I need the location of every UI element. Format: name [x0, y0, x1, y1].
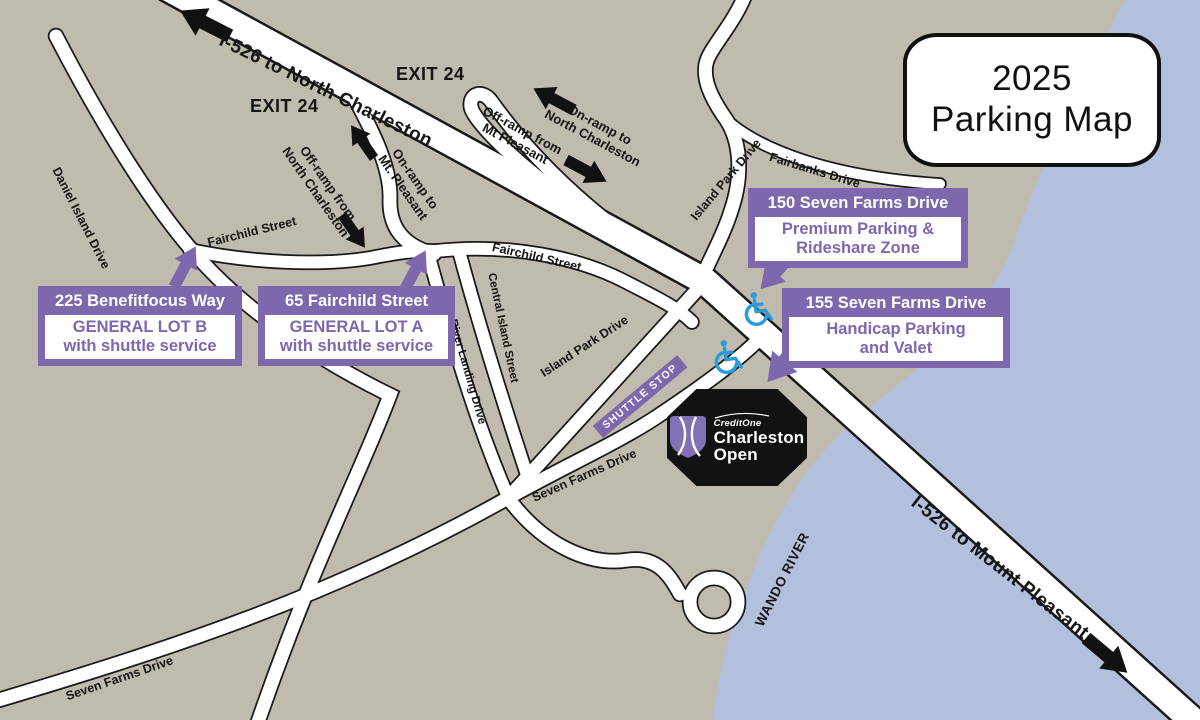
- parking-box-lot-b: 225 Benefitfocus Way GENERAL LOT B with …: [38, 286, 242, 366]
- lot-a-address: 65 Fairchild Street: [258, 290, 455, 315]
- handicap-icon: [739, 288, 776, 333]
- lot-a-details: GENERAL LOT A with shuttle service: [265, 315, 448, 359]
- premium-line1: Premium Parking &: [757, 220, 959, 239]
- lot-b-details: GENERAL LOT B with shuttle service: [45, 315, 235, 359]
- handicap-address: 155 Seven Farms Drive: [782, 292, 1010, 317]
- map-title-year: 2025: [992, 59, 1072, 100]
- exit-24-right-label: EXIT 24: [396, 64, 465, 85]
- parking-box-premium: 150 Seven Farms Drive Premium Parking & …: [748, 188, 968, 268]
- lot-b-line1: GENERAL LOT B: [47, 318, 233, 337]
- handicap-icon: [709, 336, 746, 381]
- tennis-shield-icon: [670, 415, 706, 461]
- parking-box-lot-a: 65 Fairchild Street GENERAL LOT A with s…: [258, 286, 455, 366]
- handicap-details: Handicap Parking and Valet: [789, 317, 1003, 361]
- handicap-line1: Handicap Parking: [791, 320, 1001, 339]
- premium-address: 150 Seven Farms Drive: [748, 192, 968, 217]
- logo-name-line1: Charleston: [714, 429, 805, 446]
- lot-a-line1: GENERAL LOT A: [267, 318, 446, 337]
- map-title-box: 2025 Parking Map: [903, 33, 1161, 167]
- parking-box-handicap: 155 Seven Farms Drive Handicap Parking a…: [782, 288, 1010, 368]
- lot-b-line2: with shuttle service: [47, 337, 233, 356]
- lot-b-address: 225 Benefitfocus Way: [38, 290, 242, 315]
- logo-text: CreditOne Charleston Open: [714, 412, 805, 463]
- logo-name-line2: Open: [714, 446, 758, 463]
- parking-map: I-526 to North Charleston I-526 to Mount…: [0, 0, 1200, 720]
- premium-line2: Rideshare Zone: [757, 239, 959, 258]
- charleston-open-logo: CreditOne Charleston Open: [667, 389, 807, 486]
- handicap-line2: and Valet: [791, 339, 1001, 358]
- exit-24-left-label: EXIT 24: [250, 96, 319, 117]
- culdesac-stem-fill: [508, 498, 680, 594]
- lot-a-line2: with shuttle service: [267, 337, 446, 356]
- culdesac-stem-casing: [508, 498, 680, 594]
- daniel-island-drive-fill: [56, 36, 390, 720]
- premium-details: Premium Parking & Rideshare Zone: [755, 217, 961, 261]
- map-title-text: Parking Map: [931, 100, 1133, 141]
